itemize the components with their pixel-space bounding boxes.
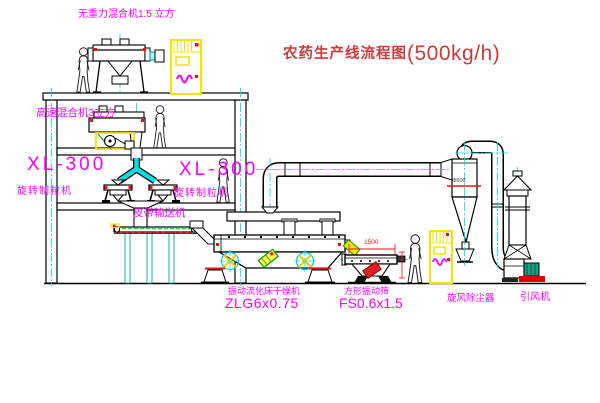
induced-draft-fan <box>502 259 545 282</box>
label-granulator-right-model: XL-300 <box>179 160 258 179</box>
gravity-mixer <box>88 39 164 92</box>
label-belt-conveyor: 皮带输送机 <box>133 208 186 219</box>
belt-conveyor <box>111 224 197 283</box>
cyclone-separator <box>447 142 509 268</box>
y-chute <box>119 158 155 181</box>
dimension-cyclone-diameter: Φ600 <box>452 179 466 185</box>
title-text: 农药生产线流程图 <box>283 46 407 62</box>
drawing-canvas: 农药生产线流程图(500kg/h) 无重力混合机1.5 立方 高速混合机3立方 … <box>0 0 600 403</box>
label-fan: 引风机 <box>520 293 550 303</box>
label-high-speed-mixer: 高速混合机3立方 <box>36 108 115 119</box>
title-capacity: (500kg/h) <box>407 42 500 65</box>
label-granulator-left-name: 旋转制粒机 <box>17 187 72 197</box>
drawing-title: 农药生产线流程图(500kg/h) <box>283 47 500 68</box>
label-gravity-mixer: 无重力混合机1.5 立方 <box>78 10 175 20</box>
label-cyclone: 旋风除尘器 <box>447 294 495 304</box>
granulator-left <box>102 180 135 203</box>
worker-figure-4 <box>408 235 422 283</box>
label-granulator-right-name: 旋转制粒机 <box>174 189 229 199</box>
control-cabinet-right <box>430 231 452 283</box>
worker-figure-2 <box>154 106 166 148</box>
dimension-screen-length: 1500 <box>364 240 378 247</box>
exhaust-duct <box>256 158 477 216</box>
label-screen-model: FS0.6x1.5 <box>339 296 403 310</box>
fluid-bed-dryer <box>201 207 360 283</box>
control-cabinet-top <box>171 40 201 94</box>
label-dryer-model: ZLG6x0.75 <box>225 296 299 310</box>
label-granulator-left-model: XL-300 <box>27 155 106 174</box>
